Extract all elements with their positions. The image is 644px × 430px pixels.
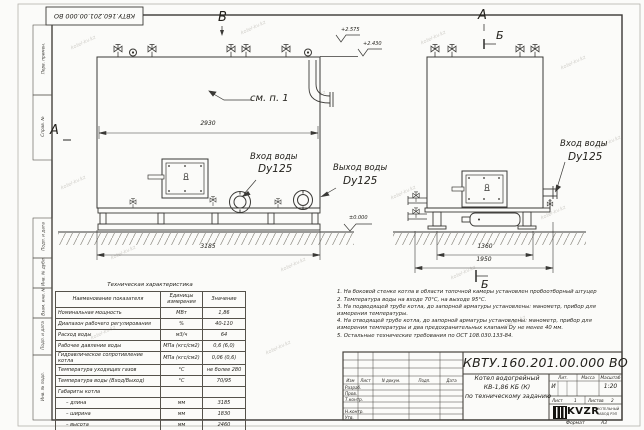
spec-header-value: Значение (203, 292, 246, 308)
note-item: 1. На боковой стенке котла в области топ… (337, 289, 619, 296)
spec-cell-unit (161, 387, 203, 398)
table-row: Габариты котла (56, 387, 246, 398)
frame-label-vzam-inv: Взам. инв. № (40, 287, 45, 317)
side-inlet-label: Вход воды (560, 139, 607, 149)
front-inlet-label: Вход воды (250, 152, 297, 162)
spec-cell-value: 1830 (203, 409, 246, 420)
spec-header-unit: Единицы измерения (161, 292, 203, 308)
table-row: Гидравлическое сопротивление котлаМПа (к… (56, 352, 246, 365)
spec-cell-unit: °С (161, 365, 203, 376)
side-view-base (425, 208, 550, 229)
company-name-line1: КОТЕЛЬНЫЙ (597, 407, 619, 411)
mass-label: Масса (577, 375, 599, 380)
spec-cell-value (203, 387, 246, 398)
side-inlet-dn: Dy125 (568, 151, 602, 163)
doc-name-line1: Котел водогрейный (465, 375, 549, 382)
spec-cell-unit: мм (161, 398, 203, 409)
front-outlet-dn: Dy125 (343, 175, 377, 187)
technical-notes: 1. На боковой стенке котла в области топ… (337, 289, 619, 340)
frame-label-inv-podl: Инв. № подл. (40, 354, 45, 419)
col-list: Лист (358, 378, 373, 383)
doc-name-line2: КВ-1,86 КБ (К) (465, 384, 549, 391)
table-row: Температура воды (Вход/Выход)°С70/95 (56, 376, 246, 387)
row-utv: Утв. (345, 415, 354, 420)
spec-cell-unit: мм (161, 420, 203, 430)
view-marker-a-right: А (478, 8, 487, 23)
col-date: Дата (440, 378, 463, 383)
spec-cell-value: 0,6 (6,0) (203, 341, 246, 352)
side-view-body (408, 57, 557, 229)
row-prov: Пров. (345, 391, 357, 396)
spec-cell-name: – длина (56, 398, 161, 409)
spec-cell-unit: % (161, 319, 203, 330)
sheet-value: 1 (574, 398, 577, 403)
dim-1360: 1360 (465, 243, 505, 250)
section-marker-b-top: Б (496, 29, 504, 42)
sheets-label: Листов (588, 398, 604, 403)
elevation-zero: ±0.000 (349, 215, 368, 221)
spec-table-title: Техническая характеристика (55, 282, 245, 288)
format-label: Формат (566, 421, 585, 426)
dim-2930: 2930 (188, 120, 228, 127)
table-row: Температура уходящих газов°Сне более 280 (56, 365, 246, 376)
ground-line (58, 232, 586, 245)
title-block-designation: КВТУ.160.201.00.000 ВО (463, 352, 622, 374)
scale-value: 1:20 (599, 383, 622, 390)
spec-cell-name: Номинальная мощность (56, 308, 161, 319)
format-value: А3 (601, 421, 607, 426)
elevation-2430: +2.430 (363, 41, 382, 47)
note-item: 4. На отводящей трубе котла, до запорной… (337, 318, 619, 331)
spec-cell-value: не более 280 (203, 365, 246, 376)
note-item: 3. На подводящей трубе котла, до запорно… (337, 304, 619, 317)
table-row: Диапазон рабочего регулирования%40-110 (56, 319, 246, 330)
spec-cell-name: Габариты котла (56, 387, 161, 398)
spec-cell-value: 40-110 (203, 319, 246, 330)
spec-cell-name: – высота (56, 420, 161, 430)
table-row: – длинамм3185 (56, 398, 246, 409)
spec-cell-name: Диапазон рабочего регулирования (56, 319, 161, 330)
spec-cell-name: Рабочее давление воды (56, 341, 161, 352)
table-row: – высотамм2460 (56, 420, 246, 430)
spec-cell-name: Температура воды (Вход/Выход) (56, 376, 161, 387)
sheets-value: 2 (611, 398, 614, 403)
front-view-body (97, 49, 333, 230)
side-left-pipes (408, 196, 427, 221)
kvzr-logo-icon (553, 406, 567, 419)
elevation-marks (320, 35, 382, 231)
elevation-2575: +2.575 (341, 27, 360, 33)
doc-name-line3: по техническому заданию (465, 393, 549, 400)
frame-label-inv-dubl: Инв. № дубл. (40, 257, 45, 287)
spec-header-row: Наименование показателя Единицы измерени… (56, 292, 246, 308)
spec-cell-unit: мм (161, 409, 203, 420)
table-row: – ширинамм1830 (56, 409, 246, 420)
front-inlet-dn: Dy125 (258, 163, 292, 175)
lit-label: Лит. (549, 375, 577, 380)
spec-cell-name: Расход воды (56, 330, 161, 341)
spec-header-name: Наименование показателя (56, 292, 161, 308)
table-row: Расход водым3/ч64 (56, 330, 246, 341)
burner-cylinder (470, 213, 520, 226)
spec-cell-unit: МПа (кгс/см2) (161, 352, 203, 365)
front-outlet-label: Выход воды (333, 163, 387, 173)
company-name-line2: ЗАВОД РЭП (597, 412, 617, 416)
col-sign: Подп. (409, 378, 440, 383)
top-rotated-designation: КВТУ.160.201.00.000 ВО (46, 7, 143, 25)
sheet-label: Лист (552, 398, 563, 403)
spec-cell-unit: МВт (161, 308, 203, 319)
dim-3185: 3185 (188, 243, 228, 250)
see-note-ref: см. п. 1 (250, 93, 289, 104)
table-row: Номинальная мощностьМВт1,86 (56, 308, 246, 319)
frame-label-sprav-no: Справ. № (40, 94, 45, 159)
spec-cell-value: 3185 (203, 398, 246, 409)
lit-value: И (549, 383, 558, 390)
spec-cell-name: – ширина (56, 409, 161, 420)
row-nkontr: Н.контр. (345, 409, 364, 414)
table-row: Рабочее давление водыМПа (кгс/см2)0,6 (6… (56, 341, 246, 352)
col-doc: N докум. (373, 378, 409, 383)
row-razrab: Разраб. (345, 385, 361, 390)
note-item: 2. Температура воды на входе 70°С, на вы… (337, 297, 619, 304)
dim-1950: 1950 (462, 256, 506, 263)
spec-cell-unit: МПа (кгс/см2) (161, 341, 203, 352)
view-marker-a-left: А (50, 123, 59, 138)
scale-label: Масштаб (599, 375, 622, 380)
spec-cell-value: 64 (203, 330, 246, 341)
note-item: 5. Остальные технические требования по О… (337, 333, 619, 340)
kvzr-logo-text: KVZR (567, 404, 599, 420)
frame-label-podp-data2: Подп. и дата (40, 317, 45, 354)
spec-table: Наименование показателя Единицы измерени… (55, 291, 246, 430)
spec-cell-value: 2460 (203, 420, 246, 430)
spec-cell-unit: °С (161, 376, 203, 387)
row-tkontr: Т.контр. (345, 397, 363, 402)
spec-cell-value: 1,86 (203, 308, 246, 319)
spec-cell-name: Температура уходящих газов (56, 365, 161, 376)
col-izm: Изм (343, 378, 358, 383)
spec-cell-value: 70/95 (203, 376, 246, 387)
frame-label-perv-primen: Перв. примен. (40, 24, 45, 94)
spec-cell-value: 0,06 (0,6) (203, 352, 246, 365)
front-view-base (98, 208, 320, 230)
spec-cell-name: Гидравлическое сопротивление котла (56, 352, 161, 365)
view-marker-v: В (218, 10, 227, 25)
drawing-sheet: kotel-kv.kz kotel-kv.kz kotel-kv.kz kote… (0, 0, 644, 430)
frame-label-podp-data: Подп. и дата (40, 217, 45, 257)
spec-cell-unit: м3/ч (161, 330, 203, 341)
